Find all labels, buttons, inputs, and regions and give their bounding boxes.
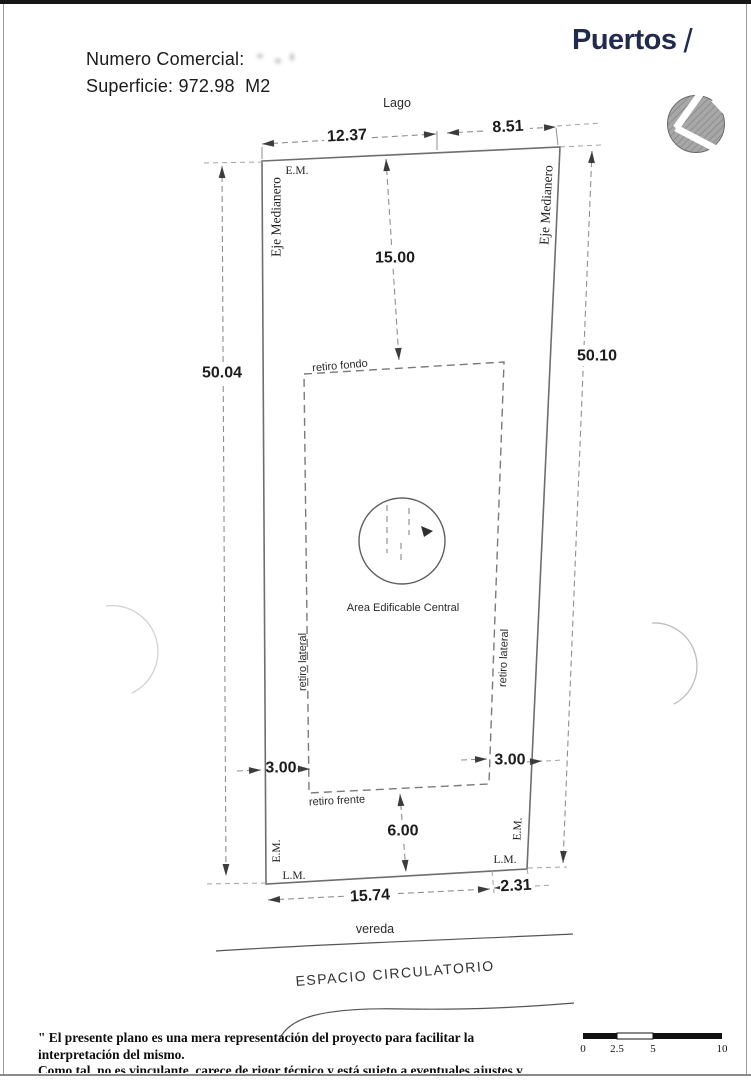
ext-top-trail (557, 123, 601, 126)
retiro-lateral-left-label: retiro lateral (297, 633, 309, 691)
plan-sheet: Numero Comercial: Superficie: 972.98 M2 … (0, 0, 751, 1080)
em-bottom-right: E.M. (511, 817, 524, 841)
dim-3-00-right: 3.00 (494, 752, 525, 769)
area-edificable-label: Area Edificable Central (347, 602, 460, 614)
eje-medianero-left: Eje Medianero (269, 177, 284, 257)
scale-tick-0: 0 (580, 1043, 586, 1055)
dim-15-74: 15.74 (350, 886, 391, 905)
dim-6-00: 6.00 (387, 823, 418, 840)
lm-left: L.M. (283, 870, 306, 882)
tie-right-bottom (528, 867, 567, 868)
dim-arrow-3-00-left-a (237, 770, 261, 771)
disclaimer-text: " El presente plano es una mera represen… (38, 1030, 548, 1073)
lm-right: L.M. (494, 854, 517, 866)
scale-tick-2-5: 2.5 (610, 1043, 624, 1055)
dim-12-37: 12.37 (327, 126, 368, 145)
em-top-left: E.M. (286, 165, 309, 177)
tie-left-top (203, 162, 263, 163)
dim-50-04: 50.04 (202, 365, 242, 382)
scale-tick-10: 10 (717, 1043, 729, 1055)
vereda-line (216, 934, 573, 951)
north-arrow-icon (668, 93, 728, 153)
dim-line-50-04 (222, 166, 226, 876)
scale-bar: 0 2.5 5 10 (580, 1033, 728, 1055)
dim-2-31: 2.31 (500, 877, 532, 896)
scale-tick-5: 5 (650, 1043, 656, 1055)
disclaimer-line-2: Como tal, no es vinculante, carece de ri… (38, 1063, 548, 1073)
vereda-label: vereda (356, 922, 394, 936)
neighbor-arc-right (652, 623, 697, 704)
dim-50-10: 50.10 (577, 348, 617, 365)
ext-top-right (556, 128, 558, 145)
dim-15-00: 15.00 (375, 250, 415, 267)
dim-3-00-left: 3.00 (265, 760, 296, 777)
dim-line-50-10 (563, 151, 592, 863)
dim-trail-3-00-right (546, 760, 563, 761)
dim-trail-2-31 (535, 885, 553, 886)
tie-left-bottom (203, 883, 266, 884)
site-plan-drawing: Lago 12.37 8.51 E.M. Eje Medianero Eje M… (0, 0, 751, 1080)
neighbor-arc-left (106, 606, 158, 693)
lago-label: Lago (383, 96, 411, 110)
disclaimer-line-1: " El presente plano es una mera represen… (38, 1030, 548, 1063)
dim-8-51: 8.51 (492, 118, 524, 137)
em-bottom-left: E.M. (271, 839, 283, 862)
tie-right-top (560, 145, 601, 147)
retiro-lateral-right-label: retiro lateral (497, 629, 511, 687)
espacio-circulatorio-label: ESPACIO CIRCULATORIO (295, 957, 495, 989)
central-circle (359, 498, 445, 584)
ext-bottom-mid (492, 871, 494, 893)
